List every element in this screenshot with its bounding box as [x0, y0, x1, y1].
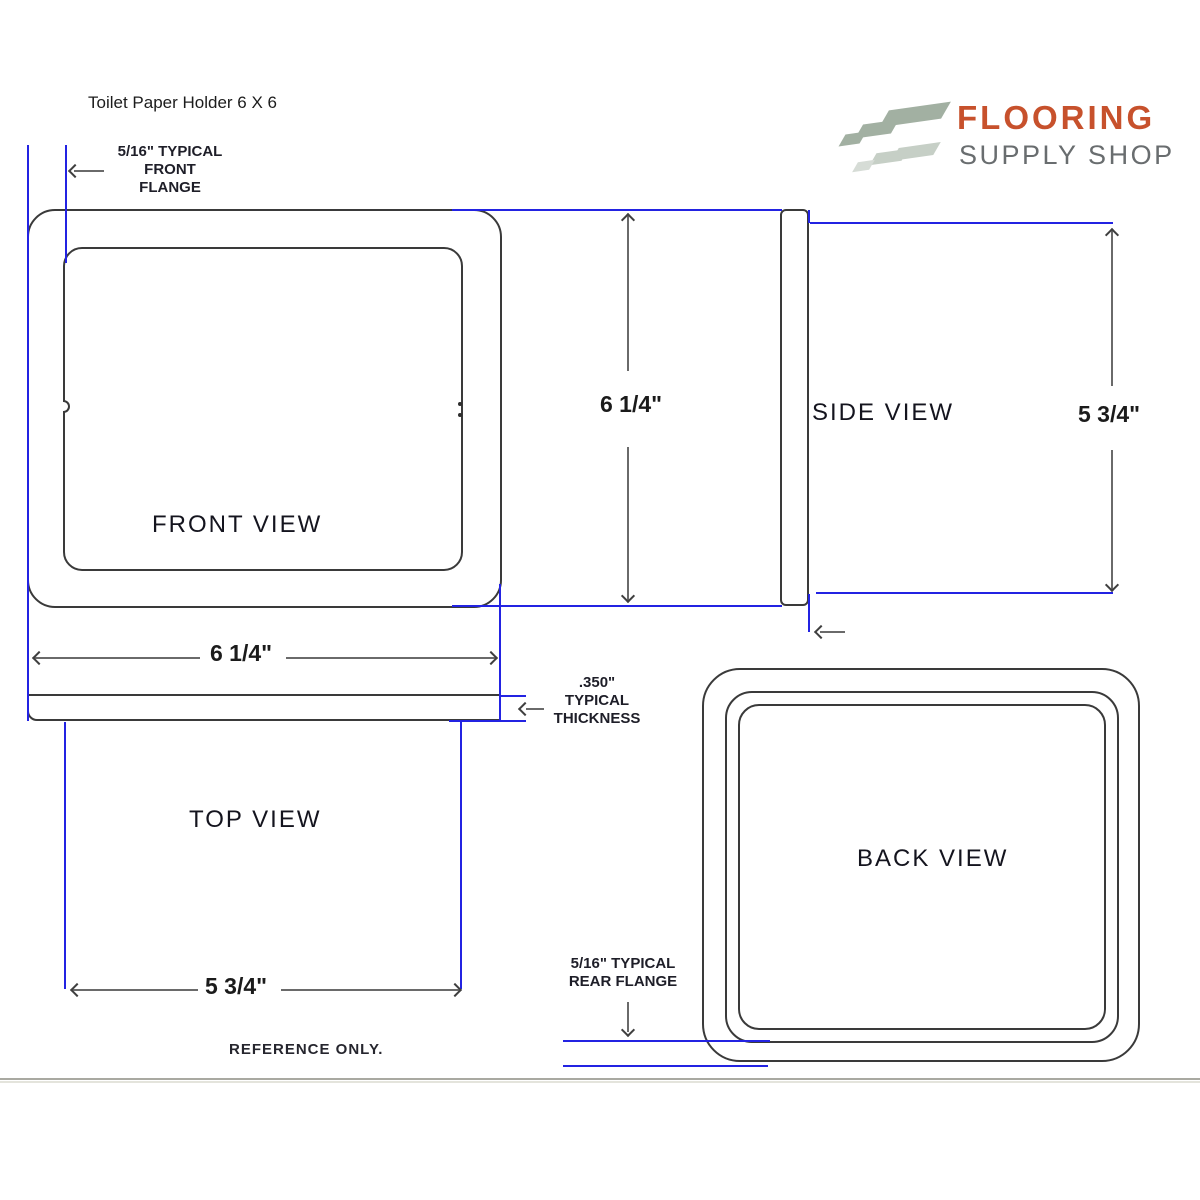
page-title: Toilet Paper Holder 6 X 6 [88, 93, 277, 113]
arrowhead-right [484, 651, 498, 665]
annotation-line: TYPICAL [533, 692, 661, 710]
brand-name-line1: FLOORING [957, 99, 1155, 137]
dimension-line [34, 657, 200, 659]
page-edge-line [0, 1081, 1200, 1083]
annotation-line: FRONT [90, 161, 250, 179]
reference-only-note: REFERENCE ONLY. [229, 1041, 383, 1058]
extension-line [452, 605, 782, 607]
top-depth-dimension: 5 3/4" [205, 973, 267, 1000]
dimension-line [1111, 231, 1113, 386]
side-height-dimension: 5 3/4" [1078, 401, 1140, 428]
extension-line [810, 222, 1113, 224]
dimension-line [627, 447, 629, 601]
extension-line [27, 145, 29, 721]
front-height-dimension: 6 1/4" [600, 391, 662, 418]
annotation-line: 5/16" TYPICAL [548, 955, 698, 973]
thickness-annotation: .350" TYPICAL THICKNESS [533, 674, 661, 728]
rear-flange-annotation: 5/16" TYPICAL REAR FLANGE [548, 955, 698, 991]
annotation-line: 5/16" TYPICAL [90, 143, 250, 161]
plank-shape [839, 132, 867, 147]
annotation-line: REAR FLANGE [548, 973, 698, 991]
extension-line [563, 1065, 768, 1067]
arrowhead-left [32, 651, 46, 665]
arrowhead-left [70, 983, 84, 997]
dimension-line [72, 989, 198, 991]
side-view-label: SIDE VIEW [812, 399, 954, 427]
extension-line [65, 145, 67, 263]
brand-name-line2: SUPPLY SHOP [959, 140, 1175, 171]
arrowhead-down [621, 589, 635, 603]
extension-line [501, 695, 526, 697]
extension-line [816, 592, 1113, 594]
arrowhead-down [1105, 578, 1119, 592]
front-view-label: FRONT VIEW [152, 511, 322, 539]
arrowhead-left [814, 625, 828, 639]
annotation-line: .350" [533, 674, 661, 692]
front-flange-annotation: 5/16" TYPICAL FRONT FLANGE [90, 143, 250, 197]
arrowhead-up [621, 213, 635, 227]
side-view-outline [780, 209, 809, 606]
dimension-line [281, 989, 459, 991]
extension-line [452, 209, 782, 211]
page-edge-line [0, 1078, 1200, 1080]
front-view-pivot-dot [458, 402, 462, 406]
arrowhead-left [518, 702, 532, 716]
annotation-line: FLANGE [90, 179, 250, 197]
extension-line [808, 594, 810, 632]
front-view-pivot-dot [458, 413, 462, 417]
dimension-line [1111, 450, 1113, 591]
extension-line [499, 584, 501, 722]
extension-line [563, 1040, 770, 1042]
arrowhead-down [621, 1023, 635, 1037]
top-view-label: TOP VIEW [189, 806, 321, 834]
plank-shape [870, 149, 909, 165]
annotation-line: THICKNESS [533, 710, 661, 728]
extension-line [460, 722, 462, 989]
dimension-line [286, 657, 496, 659]
dimension-line [627, 216, 629, 371]
top-view-flange-outline [27, 694, 501, 721]
arrowhead-up [1105, 228, 1119, 242]
spec-drawing-page: Toilet Paper Holder 6 X 6 FLOORING SUPPL… [0, 0, 1200, 1200]
extension-line [64, 722, 66, 989]
front-width-dimension: 6 1/4" [210, 640, 272, 667]
arrowhead-left [68, 164, 82, 178]
plank-shape [852, 160, 875, 172]
back-view-label: BACK VIEW [857, 845, 1008, 873]
